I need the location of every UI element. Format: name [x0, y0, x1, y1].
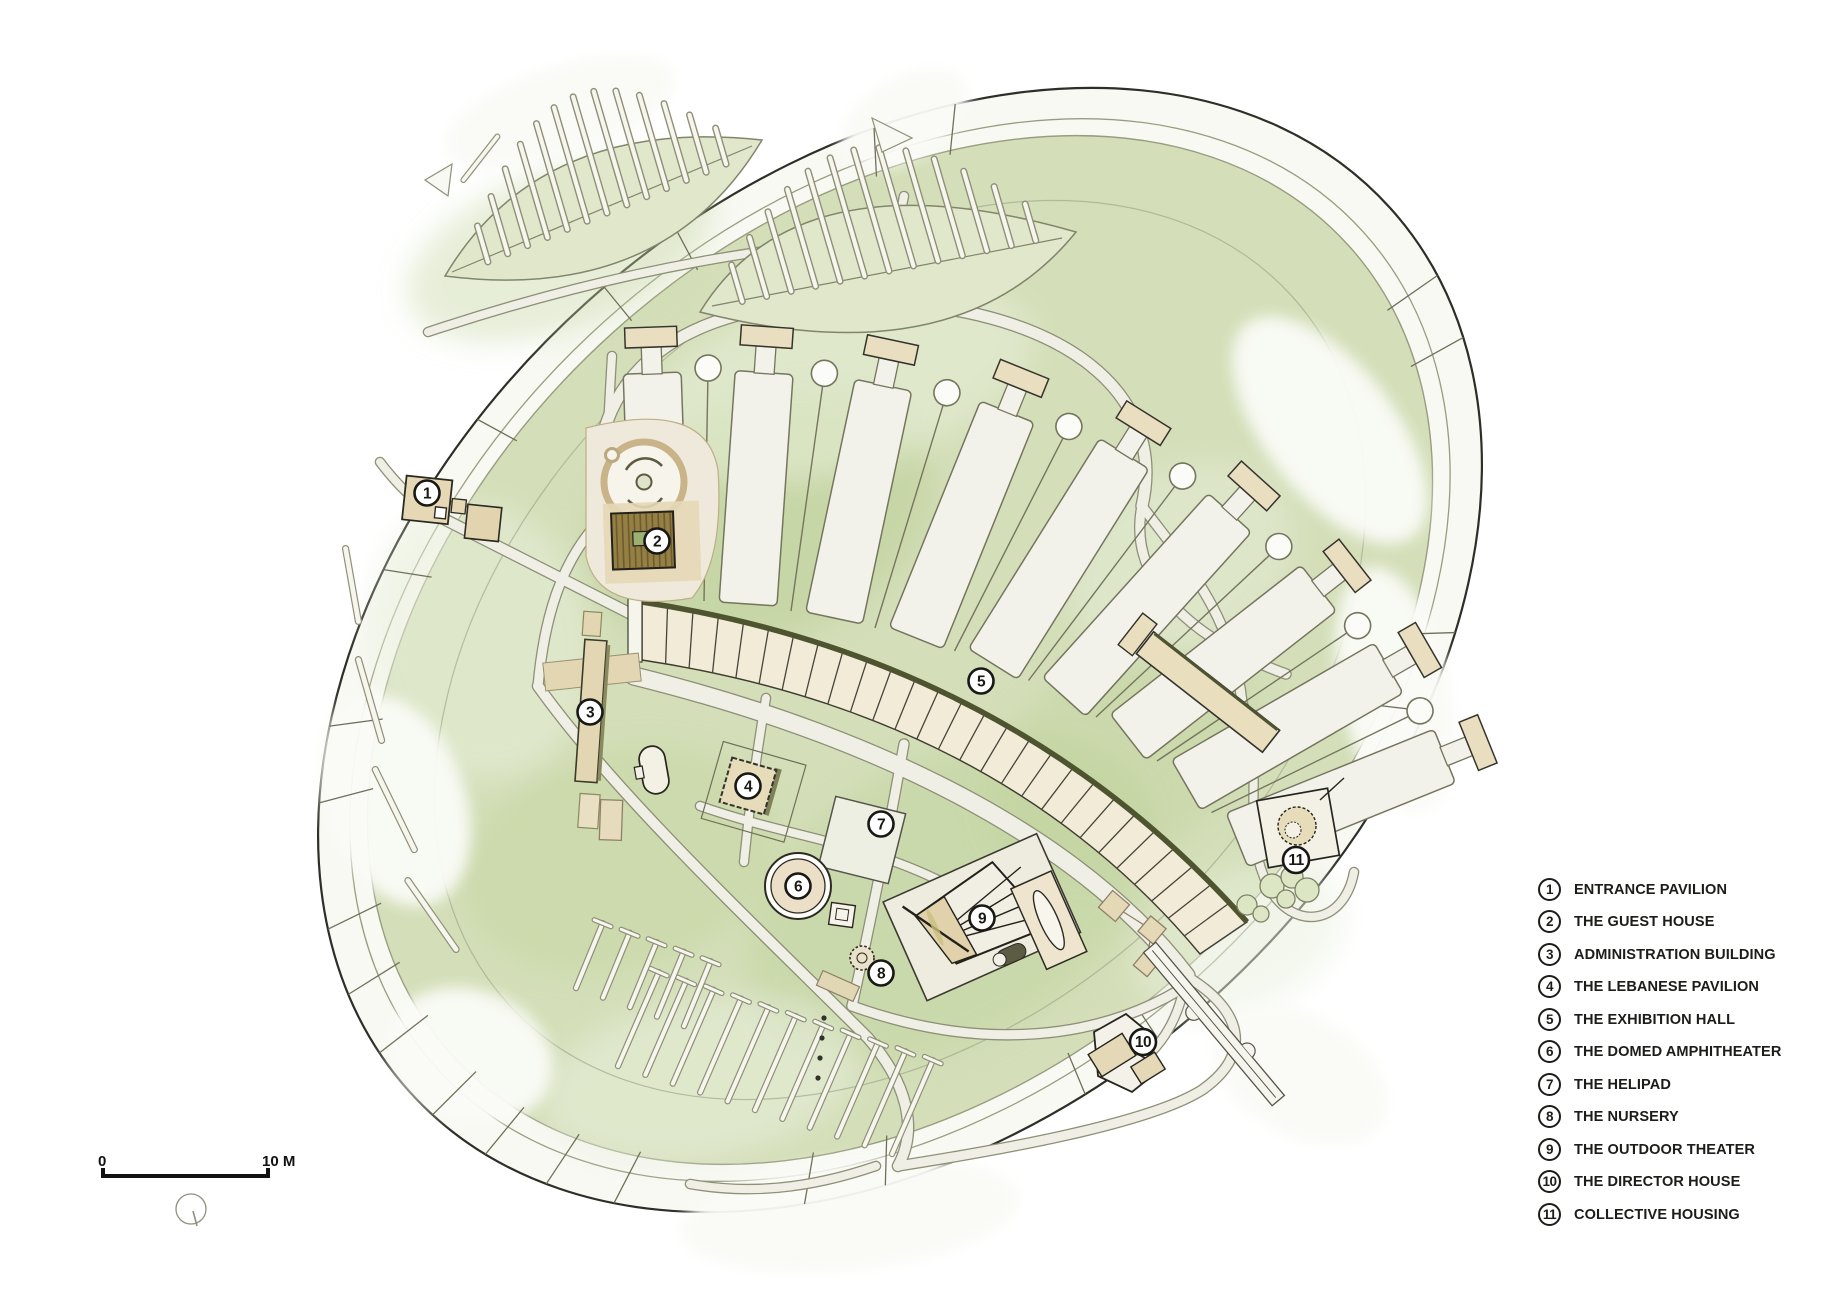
legend-number: 8 [1538, 1105, 1561, 1128]
traffic-island-triangle [425, 164, 452, 196]
marker-nursery: 8 [869, 961, 894, 986]
scale-bar: 0 10 M [98, 1153, 295, 1176]
legend-item-domed-amphitheater: 6 THE DOMED AMPHITHEATER [1538, 1040, 1828, 1064]
legend-item-lebanese-pavilion: 4 THE LEBANESE PAVILION [1538, 975, 1828, 999]
svg-text:6: 6 [794, 878, 803, 895]
legend-number: 10 [1538, 1170, 1561, 1193]
svg-text:8: 8 [877, 965, 886, 982]
legend-item-entrance-pavilion: 1 ENTRANCE PAVILION [1538, 877, 1828, 901]
legend-label: THE GUEST HOUSE [1574, 913, 1715, 930]
marker-director-house: 10 [1130, 1029, 1156, 1055]
scale-end-label: 10 M [262, 1153, 295, 1170]
legend-label: ENTRANCE PAVILION [1574, 881, 1727, 898]
marker-exhibition-hall: 5 [969, 669, 994, 694]
legend-number: 11 [1538, 1203, 1561, 1226]
svg-text:11: 11 [1288, 852, 1304, 869]
legend-item-collective-housing: 11 COLLECTIVE HOUSING [1538, 1202, 1828, 1226]
legend-number: 4 [1538, 975, 1561, 998]
marker-collective-housing: 11 [1283, 847, 1309, 873]
legend-item-director-house: 10 THE DIRECTOR HOUSE [1538, 1170, 1828, 1194]
legend-item-exhibition-hall: 5 THE EXHIBITION HALL [1538, 1007, 1828, 1031]
north-indicator [176, 1194, 206, 1226]
legend-label: THE HELIPAD [1574, 1076, 1671, 1093]
marker-guest-house: 2 [645, 529, 670, 554]
marker-entrance-pavilion: 1 [415, 481, 440, 506]
svg-text:10: 10 [1135, 1034, 1151, 1051]
legend: 1 ENTRANCE PAVILION 2 THE GUEST HOUSE 3 … [1538, 877, 1828, 1235]
marker-domed-amphitheater: 6 [786, 874, 811, 899]
legend-item-guest-house: 2 THE GUEST HOUSE [1538, 910, 1828, 934]
legend-number: 3 [1538, 943, 1561, 966]
legend-label: THE NURSERY [1574, 1108, 1679, 1125]
small-annex [599, 800, 622, 841]
legend-label: ADMINISTRATION BUILDING [1574, 946, 1776, 963]
svg-text:2: 2 [653, 533, 661, 550]
legend-number: 6 [1538, 1040, 1561, 1063]
legend-number: 7 [1538, 1073, 1561, 1096]
svg-text:5: 5 [977, 673, 986, 690]
marker-administration: 3 [578, 700, 603, 725]
legend-label: THE DIRECTOR HOUSE [1574, 1173, 1740, 1190]
legend-number: 5 [1538, 1008, 1561, 1031]
legend-number: 1 [1538, 878, 1561, 901]
legend-number: 2 [1538, 910, 1561, 933]
svg-text:9: 9 [978, 910, 987, 927]
scale-start-label: 0 [98, 1153, 106, 1170]
legend-label: THE DOMED AMPHITHEATER [1574, 1043, 1781, 1060]
marker-lebanese-pavilion: 4 [736, 774, 761, 799]
legend-label: COLLECTIVE HOUSING [1574, 1206, 1740, 1223]
legend-label: THE LEBANESE PAVILION [1574, 978, 1759, 995]
legend-item-outdoor-theater: 9 THE OUTDOOR THEATER [1538, 1137, 1828, 1161]
legend-item-administration: 3 ADMINISTRATION BUILDING [1538, 942, 1828, 966]
svg-text:7: 7 [877, 816, 885, 833]
svg-text:1: 1 [423, 485, 432, 502]
svg-text:3: 3 [586, 704, 595, 721]
scale-bar-line [103, 1168, 268, 1176]
legend-label: THE OUTDOOR THEATER [1574, 1141, 1755, 1158]
site-plan-page: { "page": { "background": "#ffffff", "de… [0, 0, 1838, 1300]
legend-item-nursery: 8 THE NURSERY [1538, 1105, 1828, 1129]
legend-label: THE EXHIBITION HALL [1574, 1011, 1735, 1028]
svg-text:4: 4 [744, 778, 753, 795]
marker-outdoor-theater: 9 [970, 906, 995, 931]
legend-item-helipad: 7 THE HELIPAD [1538, 1072, 1828, 1096]
marker-helipad: 7 [869, 812, 894, 837]
legend-number: 9 [1538, 1138, 1561, 1161]
